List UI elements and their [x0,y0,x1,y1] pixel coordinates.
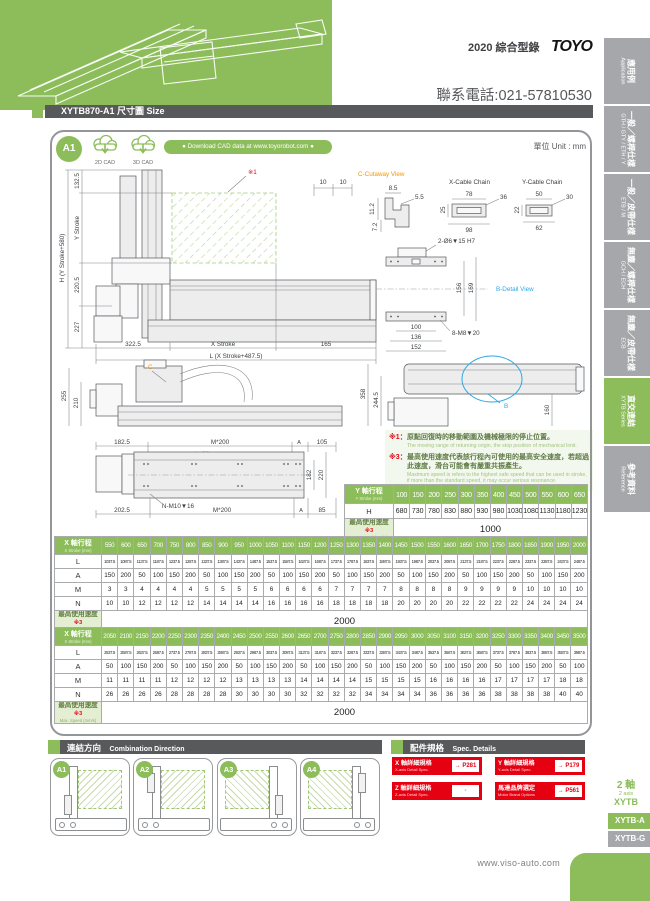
table-cell: 20 [425,597,441,611]
table-cell: 2387.5 [539,555,555,569]
sidebar-tab-reference[interactable]: 參考資料Reference [604,446,650,512]
table-cell: 13 [247,674,263,688]
hero-line-art [0,0,332,110]
table-cell: 12 [182,674,198,688]
table-cell: 38 [522,688,538,702]
table-cell: 1487.5 [247,555,263,569]
sidebar-tab-xytb-active[interactable]: 直交連結XYTB Series [604,378,650,444]
table-cell: 1950 [555,537,571,555]
table-cell: 150 [263,660,279,674]
table-cell: 200 [571,569,588,583]
cad-3d-label: 3D CAD [126,160,160,166]
table-cell: 1600 [441,537,457,555]
table-cell: 3500 [571,628,588,646]
table-cell: 12 [199,674,215,688]
table-cell: 1237.5 [166,555,182,569]
table-cell: 26 [150,688,166,702]
table-cell: 10 [522,583,538,597]
table-cell: 3587.5 [441,646,457,660]
table-cell: 3487.5 [409,646,425,660]
spec-label-en: Z-axis Detail Spec. [395,792,449,797]
spec-label-zh: 馬達品牌選定 [498,785,552,793]
spec-label-zh: X 軸詳細規格 [395,760,449,768]
table-cell: 2900 [377,628,393,646]
series-badge: 2 軸 2 axis XYTB [602,780,650,808]
table-cell: 14 [199,597,215,611]
table-cell: 15 [377,674,393,688]
table-cell: ※3 [74,711,82,717]
combination-card-a4: A4 [300,758,380,836]
table-cell: 2550 [263,628,279,646]
card-badge: A4 [303,761,320,778]
spec-page-ref: → P281 [452,760,479,772]
table-cell: 2750 [328,628,344,646]
table-cell: 14 [312,674,328,688]
table-cell: 最高使用速度 ※3 [55,611,101,627]
table-cell: 14 [296,674,312,688]
sidebar-tab-gch[interactable]: 無塵／螺桿仕樣GCH / ECH [604,242,650,308]
tab-label-zh: 無塵／皮帶仕樣 [626,315,636,371]
table-cell: H [345,504,394,519]
table-cell: M [55,583,102,597]
table-cell: 2500 [247,628,263,646]
table-cell: 2600 [280,628,296,646]
table-cell: 30 [263,688,279,702]
table-cell: 1300 [344,537,360,555]
table-cell: 10 [539,583,555,597]
table-cell: 100 [539,569,555,583]
table-cell: 1400 [377,537,393,555]
table-cell: 100 [506,660,522,674]
table-cell: 1587.5 [280,555,296,569]
table-cell: 2087.5 [441,555,457,569]
table-cell: 9 [474,583,490,597]
table-cell: 最高使用速度 ※3 [345,519,393,535]
table-cell: 1637.5 [296,555,312,569]
table-cell: 50 [393,569,409,583]
table-cell: 32 [344,688,360,702]
table-cell: 14 [247,597,263,611]
table-cell: 3137.5 [296,646,312,660]
table-cell: 200 [118,569,134,583]
table-cell: 最高使用速度 ※3 [55,702,101,718]
spec-label-zh: Y 軸詳細規格 [498,760,552,768]
table-cell: 12 [182,597,198,611]
table-cell: 4 [134,583,150,597]
table-cell: 28 [182,688,198,702]
table-cell: 18 [344,597,360,611]
tab-label-en: GCH / ECH [619,247,626,303]
spec-label-en: Motor Brand Options [498,792,552,797]
table-cell: 24 [522,597,538,611]
table-cell: 700 [150,537,166,555]
table-cell: 2400 [215,628,231,646]
table-cell: 2437.5 [555,555,571,569]
table-cell: 8 [393,583,409,597]
spec-link-motor-brand[interactable]: 馬達品牌選定 Motor Brand Options → P561 [495,782,585,800]
table-cell: 8 [441,583,457,597]
cloud-download-icon [127,134,159,156]
table-cell: 38 [506,688,522,702]
footnote-mark: ※3： [389,453,407,485]
table-cell: 100 [474,569,490,583]
tab-label-zh: 一般／螺桿仕樣 [626,111,636,167]
table-cell: 2150 [134,628,150,646]
table-cell: 550 [102,537,118,555]
table-cell: 4 [166,583,182,597]
card-badge: A1 [53,761,70,778]
table-cell: 40 [571,688,588,702]
table-cell: 16 [296,597,312,611]
table-cell: Y Stroke (mm) [345,496,393,502]
table-cell: 最高使用速度 ※3Max. Speed (mm/s) [55,702,102,724]
table-cell: 150 [522,660,538,674]
table-cell: 150 [134,660,150,674]
table-cell: 3087.5 [280,646,296,660]
tab-label-en: Application [619,58,626,85]
table-cell: 1180 [555,504,571,519]
table-cell: 1537.5 [263,555,279,569]
table-cell: 26 [118,688,134,702]
table-cell: 50 [490,660,506,674]
table-cell: 1187.5 [150,555,166,569]
table-cell: 100 [394,485,410,504]
table-cell: 14 [344,674,360,688]
table-cell: 15 [393,674,409,688]
tab-label-en: Reference [619,463,626,495]
table-cell: 2587.5 [118,646,134,660]
table-cell: 150 [199,660,215,674]
table-cell: 50 [102,660,118,674]
table-cell: 3300 [506,628,522,646]
table-cell: 18 [555,674,571,688]
spec-label-zh: Z 軸詳細規格 [395,785,449,793]
tab-label-en: XYTB Series [619,395,626,427]
table-cell: 3200 [474,628,490,646]
combination-direction-header: 連結方向 Combination Direction [60,740,382,754]
footnote-1: ※1： 原點回復時的移動範圍及機械極限的停止位置。 The moving ran… [389,433,589,450]
table-cell: 32 [312,688,328,702]
table-cell: 400 [490,485,506,504]
section-title-zh: 配件規格 [410,743,444,753]
table-cell: 1000 [247,537,263,555]
table-cell: 1137.5 [134,555,150,569]
table-cell: 1737.5 [328,555,344,569]
sidebar-tab-application[interactable]: 應用例Application [604,38,650,104]
table-cell: 7 [377,583,393,597]
table-cell: 2537.5 [102,646,118,660]
table-cell: 30 [247,688,263,702]
table-cell: 16 [280,597,296,611]
table-cell: 3037.5 [263,646,279,660]
y-stroke-table-grid: Y 軸行程Y Stroke (mm)1001502002503003504004… [344,484,588,541]
table-cell: 1687.5 [312,555,328,569]
table-cell: 50 [263,569,279,583]
table-cell: 2450 [231,628,247,646]
table-cell: A [55,660,102,674]
table-cell: 200 [182,569,198,583]
table-cell: 3887.5 [539,646,555,660]
spec-label-en: Y-axis Detail Spec. [498,767,552,772]
table-cell: 200 [539,660,555,674]
table-cell: 150 [458,660,474,674]
table-cell: 150 [393,660,409,674]
table-cell: 2037.5 [425,555,441,569]
table-cell: 15 [409,674,425,688]
table-cell: 28 [166,688,182,702]
cad-2d-label: 2D CAD [88,160,122,166]
table-cell: 1550 [425,537,441,555]
table-cell: 18 [361,597,377,611]
table-cell: 200 [409,660,425,674]
hero-product-image [0,0,332,110]
table-cell: 3387.5 [377,646,393,660]
table-cell: 2287.5 [506,555,522,569]
table-cell: 880 [458,504,474,519]
table-cell: 40 [555,688,571,702]
footnote-en: Maximum speed is refers to the highest s… [407,472,589,485]
table-cell: 22 [474,597,490,611]
table-cell: 950 [231,537,247,555]
spec-link-x-axis[interactable]: X 軸詳細規格 X-axis Detail Spec. → P281 [392,757,482,775]
table-cell: X 軸行程X Stroke (mm) [55,628,102,646]
brand-line: 2020 綜合型錄 TOYO [360,38,592,56]
table-cell: 9 [490,583,506,597]
table-cell: 150 [361,569,377,583]
sidebar-tab-gth[interactable]: 一般／螺桿仕樣GTH / GTY / ETH / Y [604,106,650,172]
table-cell: 2200 [150,628,166,646]
table-cell: 150 [328,660,344,674]
table-cell: 9 [458,583,474,597]
table-cell: 200 [280,660,296,674]
table-cell: 22 [506,597,522,611]
table-cell: 3287.5 [344,646,360,660]
table-cell: M [55,674,102,688]
cad-3d-download[interactable]: 3D CAD [126,134,160,166]
table-cell: 100 [377,660,393,674]
table-cell: 2937.5 [231,646,247,660]
table-cell: 34 [361,688,377,702]
table-cell: 3450 [555,628,571,646]
tab-label-zh: 參考資料 [626,463,636,495]
variant-badge-a1: A1 [56,136,82,162]
table-cell: 36 [458,688,474,702]
table-cell: 1230 [571,504,587,519]
table-cell: 18 [571,674,588,688]
table-cell: Max. Speed (mm/s) [55,718,101,723]
table-cell: 1500 [409,537,425,555]
unit-label: 單位 Unit : mm [498,141,586,152]
table-cell: 200 [474,660,490,674]
spec-link-y-axis[interactable]: Y 軸詳細規格 Y-axis Detail Spec. → P179 [495,757,585,775]
table-cell: 12 [166,597,182,611]
table-cell: A [55,569,102,583]
cloud-download-icon [89,134,121,156]
table-cell: 2300 [182,628,198,646]
table-cell: 100 [344,569,360,583]
table-cell: 100 [409,569,425,583]
table-cell: 24 [555,597,571,611]
table-cell: 16 [474,674,490,688]
table-cell: 1250 [328,537,344,555]
table-cell: 3400 [539,628,555,646]
footnote-3: ※3： 最高使用速度代表該行程內可使用的最高安全速度，若超過此速度，滑台可能會有… [389,453,589,485]
table-cell: 1887.5 [377,555,393,569]
table-cell: 15 [361,674,377,688]
table-cell: X Stroke (mm) [55,639,101,645]
table-cell: 2650 [296,628,312,646]
table-cell: 100 [441,660,457,674]
table-cell: 1650 [458,537,474,555]
footnote-en: The moving range of returning origin, th… [407,443,577,450]
table-cell: 10 [102,597,118,611]
table-cell: 17 [539,674,555,688]
table-cell: 200 [215,660,231,674]
table-cell: 1987.5 [409,555,425,569]
contact-phone: 聯系電話:021-57810530 [340,84,592,105]
table-cell: 16 [312,597,328,611]
spec-details-header: 配件規格 Spec. Details [403,740,585,754]
spec-link-z-axis[interactable]: Z 軸詳細規格 Z-axis Detail Spec. - [392,782,482,800]
table-cell: 50 [522,569,538,583]
table-cell: 600 [118,537,134,555]
table-cell: 150 [425,569,441,583]
table-cell: 2850 [361,628,377,646]
cad-2d-download[interactable]: 2D CAD [88,134,122,166]
table-cell: 850 [199,537,215,555]
table-cell: 200 [344,660,360,674]
table-cell: 3337.5 [361,646,377,660]
table-cell: 8 [425,583,441,597]
table-cell: X 軸行程X Stroke (mm) [55,537,102,555]
table-cell: 7 [344,583,360,597]
table-cell: 12 [134,597,150,611]
section-accent-square [48,740,60,754]
table-cell: 22 [458,597,474,611]
table-cell: 100 [280,569,296,583]
table-cell: 780 [426,504,442,519]
y-stroke-table: Y 軸行程Y Stroke (mm)1001502002503003504004… [344,484,588,541]
table-cell: 1350 [361,537,377,555]
table-cell: 38 [490,688,506,702]
table-cell: 1287.5 [182,555,198,569]
combination-card-a2: A2 [133,758,213,836]
table-cell: 13 [263,674,279,688]
table-cell: 36 [441,688,457,702]
table-cell: 1337.5 [199,555,215,569]
table-cell: 16 [441,674,457,688]
table-cell: 13 [231,674,247,688]
table-cell: 4 [182,583,198,597]
model-tab-xytb-a[interactable]: XYTB-A [608,813,650,829]
table-cell: 36 [425,688,441,702]
table-cell: 2737.5 [166,646,182,660]
table-cell: 450 [507,485,523,504]
table-cell: 50 [425,660,441,674]
table-cell: 10 [555,583,571,597]
table-cell: 1937.5 [393,555,409,569]
table-cell: 3050 [425,628,441,646]
table-cell: 150 [166,569,182,583]
table-cell: X Stroke (mm) [55,548,101,554]
section-title-en: Spec. Details [452,746,496,753]
combination-card-a1: A1 [50,758,130,836]
table-cell: 6 [280,583,296,597]
tab-label-zh: 一般／皮帶仕樣 [626,179,636,235]
table-cell: 200 [312,569,328,583]
table-cell: 50 [231,660,247,674]
table-cell: 50 [166,660,182,674]
table-cell: 2050 [102,628,118,646]
table-cell: 11 [150,674,166,688]
spec-page-ref: → P561 [555,785,582,797]
table-cell: 1900 [539,537,555,555]
table-cell: 3100 [441,628,457,646]
table-cell: 2137.5 [458,555,474,569]
table-cell: 28 [215,688,231,702]
table-cell: 650 [134,537,150,555]
card-badge: A3 [220,761,237,778]
sidebar-tab-etb[interactable]: 一般／皮帶仕樣ETB / M [604,174,650,240]
table-cell: 34 [377,688,393,702]
catalog-page: 2020 綜合型錄 TOYO 聯系電話:021-57810530 應用例Appl… [0,0,650,901]
table-cell: 100 [312,660,328,674]
table-cell: 2487.5 [571,555,588,569]
spec-page-ref: → P179 [555,760,582,772]
table-cell: 100 [118,660,134,674]
website-link[interactable]: www.viso-auto.com [430,858,560,868]
table-cell: 2250 [166,628,182,646]
table-cell: 200 [247,569,263,583]
table-cell: 3187.5 [312,646,328,660]
table-cell: 1130 [539,504,555,519]
table-cell: 2000 [102,702,588,724]
x-stroke-table-2-grid: X 軸行程X Stroke (mm)2050210021502200225023… [54,627,588,724]
table-cell: 8 [409,583,425,597]
table-cell: 750 [166,537,182,555]
sidebar-tab-ecb[interactable]: 無塵／皮帶仕樣ECB [604,310,650,376]
table-cell: 3737.5 [490,646,506,660]
table-cell: 16 [263,597,279,611]
footnote-zh: 最高使用速度代表該行程內可使用的最高安全速度，若超過此速度，滑台可能會有嚴重共振… [407,453,589,471]
table-cell: 200 [506,569,522,583]
table-cell: 6 [312,583,328,597]
table-cell: 100 [247,660,263,674]
table-cell: 1080 [523,504,539,519]
combination-card-a3: A3 [217,758,297,836]
table-cell: 550 [539,485,555,504]
table-cell: 2100 [118,628,134,646]
table-cell: 2687.5 [150,646,166,660]
table-cell: 5 [215,583,231,597]
x-stroke-table-2: X 軸行程X Stroke (mm)2050210021502200225023… [54,627,588,724]
table-cell: ※3 [74,620,82,626]
table-cell: 2350 [199,628,215,646]
table-cell: 11 [102,674,118,688]
download-cad-link[interactable]: ● Download CAD data at www.toyorobot.com… [164,140,332,154]
table-cell: 3787.5 [506,646,522,660]
table-cell: 100 [215,569,231,583]
table-cell: 32 [328,688,344,702]
table-cell: 1030 [507,504,523,519]
table-cell: 32 [296,688,312,702]
table-cell: X 軸行程 [55,629,101,639]
table-cell: 36 [474,688,490,702]
model-tab-xytb-g[interactable]: XYTB-G [608,831,650,847]
series-axis-zh: 2 軸 [602,780,650,791]
table-cell: 2787.5 [182,646,198,660]
series-name: XYTB [602,797,650,808]
